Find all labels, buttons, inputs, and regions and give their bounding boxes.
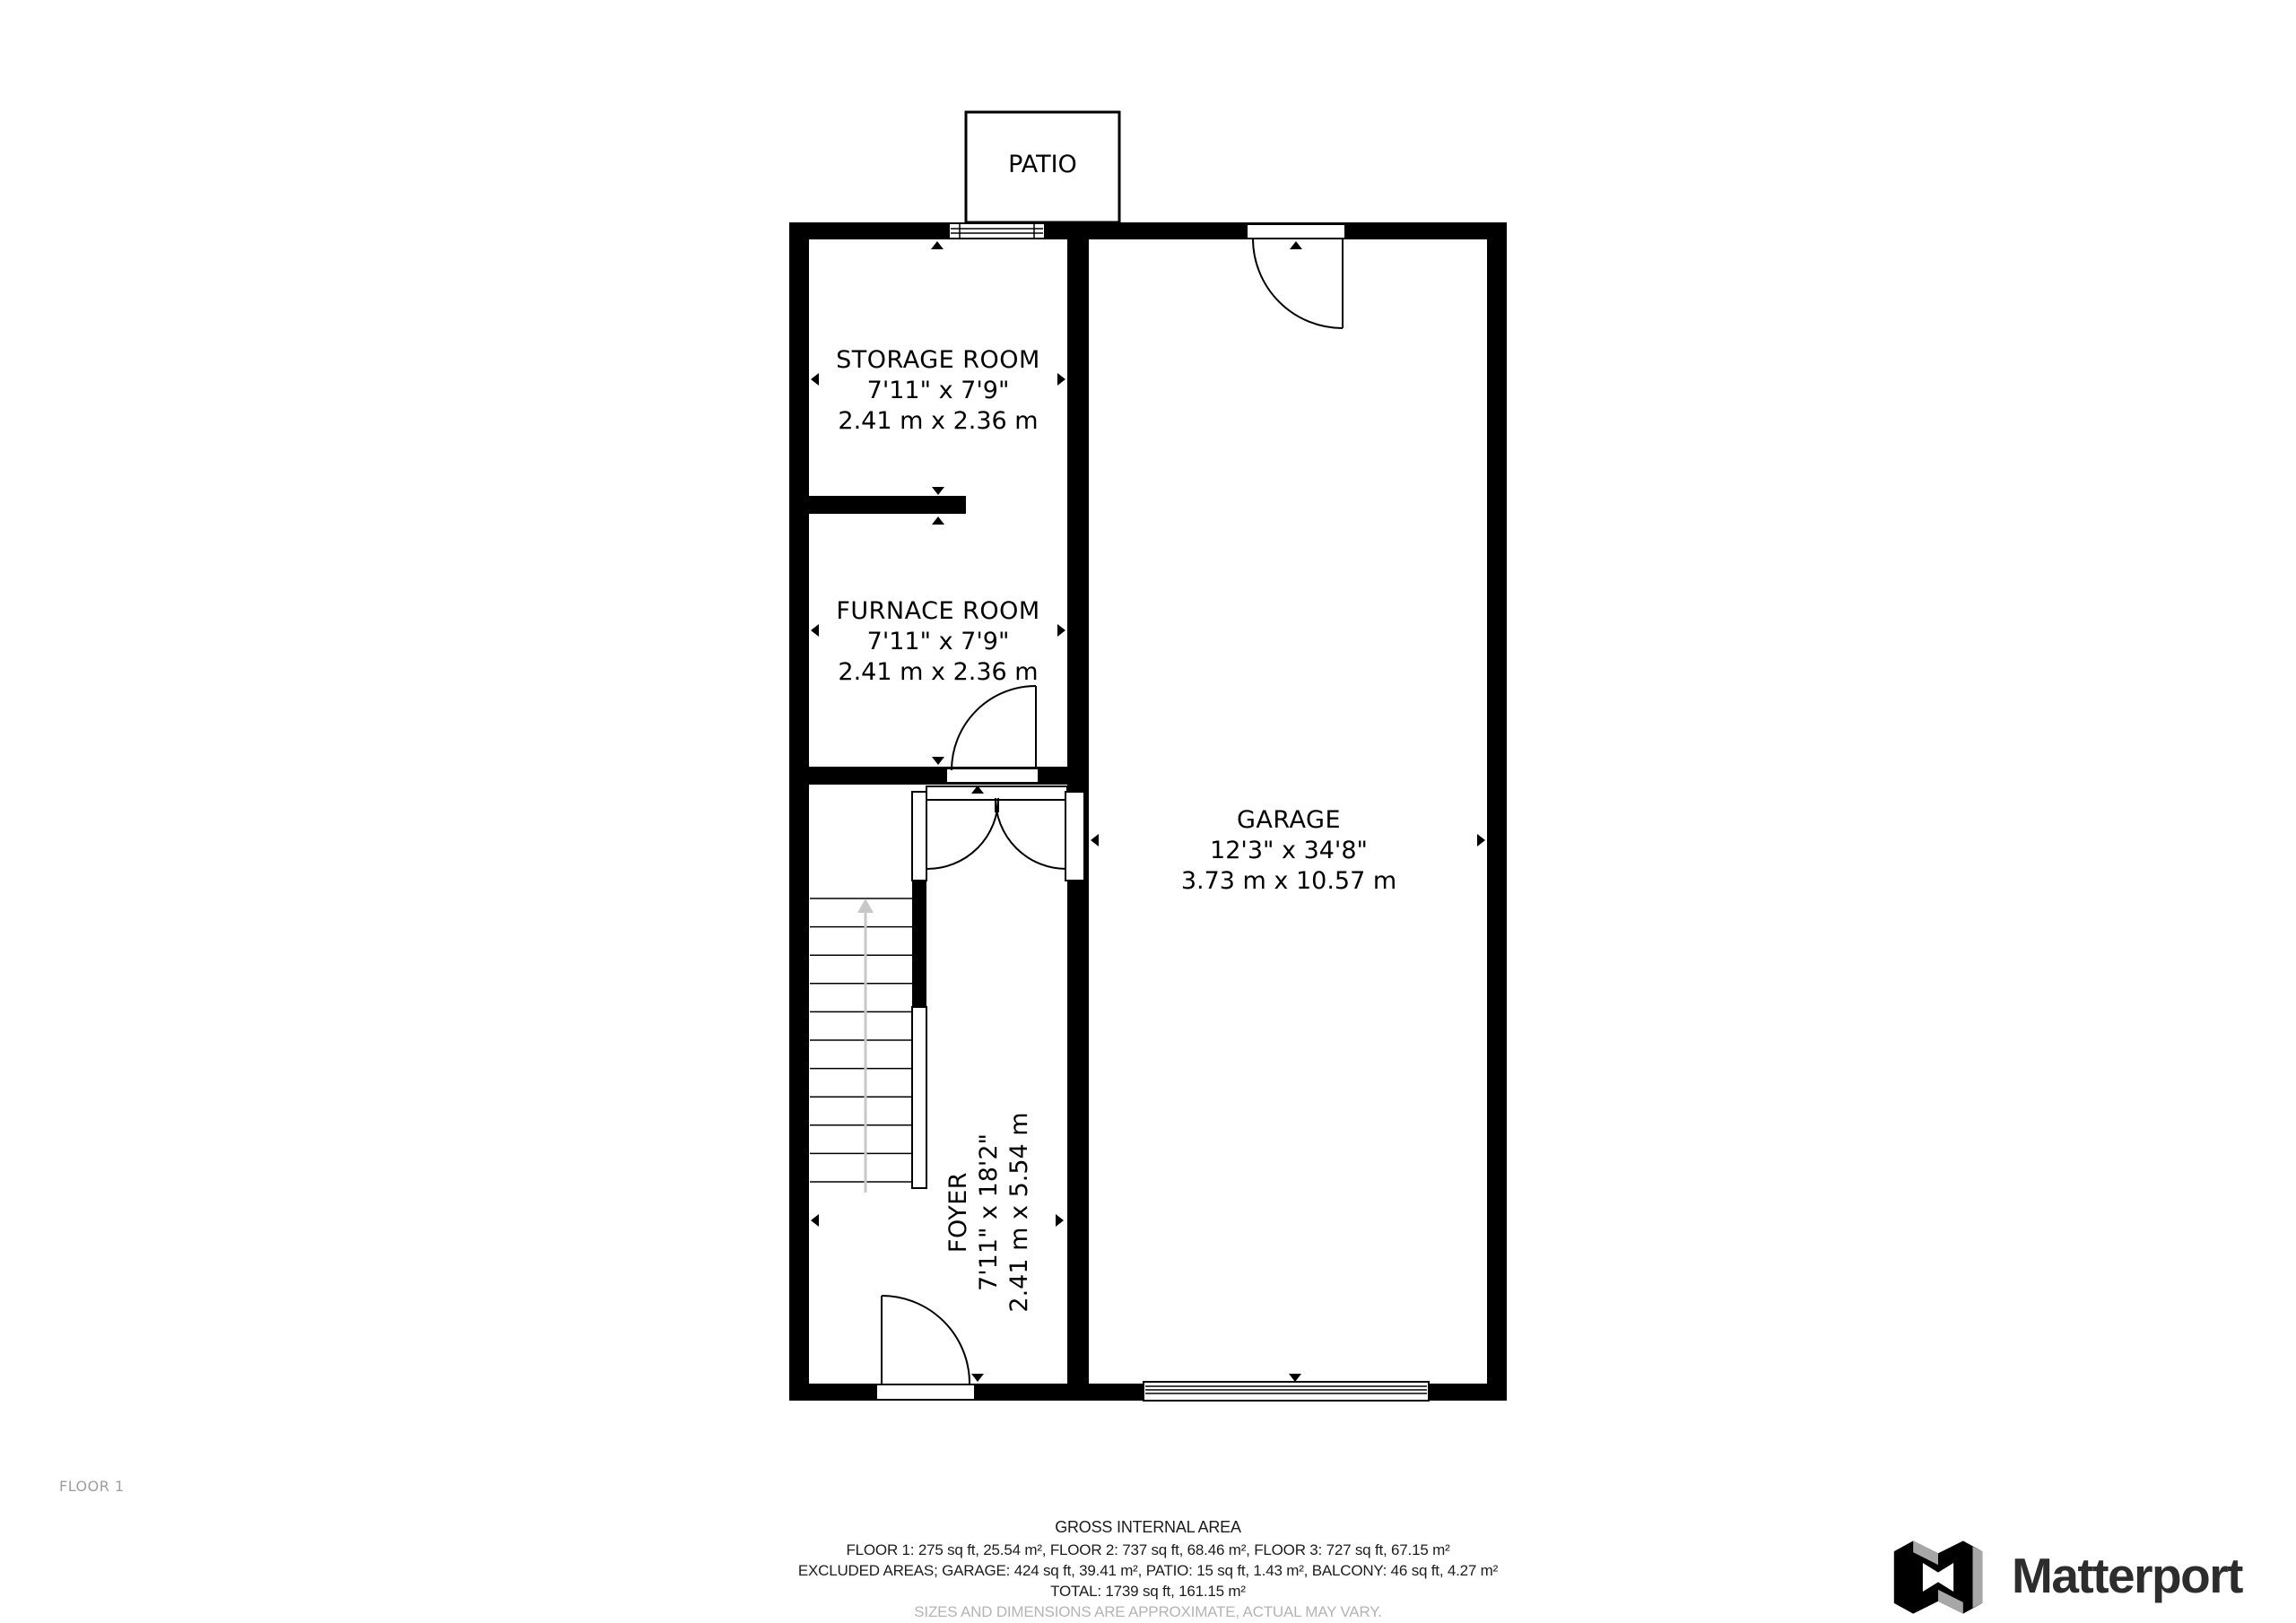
garage-label: GARAGE 12'3" x 34'8" 3.73 m x 10.57 m [1091,805,1487,897]
door-jamb-right [1065,792,1084,881]
foyer-label: FOYER 7'11" x 18'2" 2.41 m x 5.54 m [944,1087,1035,1338]
room-dims-ft: 7'11" x 7'9" [809,627,1067,657]
matterport-brand: Matterport [1886,1536,2272,1619]
garage-door [1144,1382,1429,1401]
stair-railing [912,1007,926,1188]
furnace-door [946,686,1039,783]
room-name: STORAGE ROOM [809,345,1067,376]
matterport-logo-icon [1886,1536,1990,1619]
door-jamb-left [912,792,926,881]
foyer-double-door [912,786,1084,881]
wall-stair-side [912,879,926,1007]
room-dims-ft: 7'11" x 18'2" [974,1087,1004,1338]
floorplan-page: PATIO STORAGE ROOM 7'11" x 7'9" 2.41 m x… [0,0,2296,1623]
wall-top [789,222,1507,239]
wall-left [789,222,809,1401]
room-dims-ft: 7'11" x 7'9" [809,376,1067,406]
room-dims-m: 2.41 m x 5.54 m [1004,1087,1035,1338]
garage-top-door [1247,224,1345,328]
patio-label: PATIO [966,151,1119,178]
floor-indicator: FLOOR 1 [59,1478,125,1495]
patio-window [949,223,1045,239]
wall-right [1487,222,1507,1401]
stairs [810,898,926,1193]
room-dims-m: 2.41 m x 2.36 m [809,657,1067,688]
wall-storage-furnace [809,496,966,514]
room-dims-m: 3.73 m x 10.57 m [1091,866,1487,897]
matterport-wordmark: Matterport [2012,1536,2242,1615]
room-name: FURNACE ROOM [809,596,1067,627]
room-dims-ft: 12'3" x 34'8" [1091,836,1487,866]
furnace-room-label: FURNACE ROOM 7'11" x 7'9" 2.41 m x 2.36 … [809,596,1067,688]
storage-room-label: STORAGE ROOM 7'11" x 7'9" 2.41 m x 2.36 … [809,345,1067,437]
room-name: GARAGE [1091,805,1487,836]
room-name: FOYER [944,1087,974,1338]
gross-internal-area-title: GROSS INTERNAL AREA [0,1518,2296,1537]
room-dims-m: 2.41 m x 2.36 m [809,406,1067,437]
